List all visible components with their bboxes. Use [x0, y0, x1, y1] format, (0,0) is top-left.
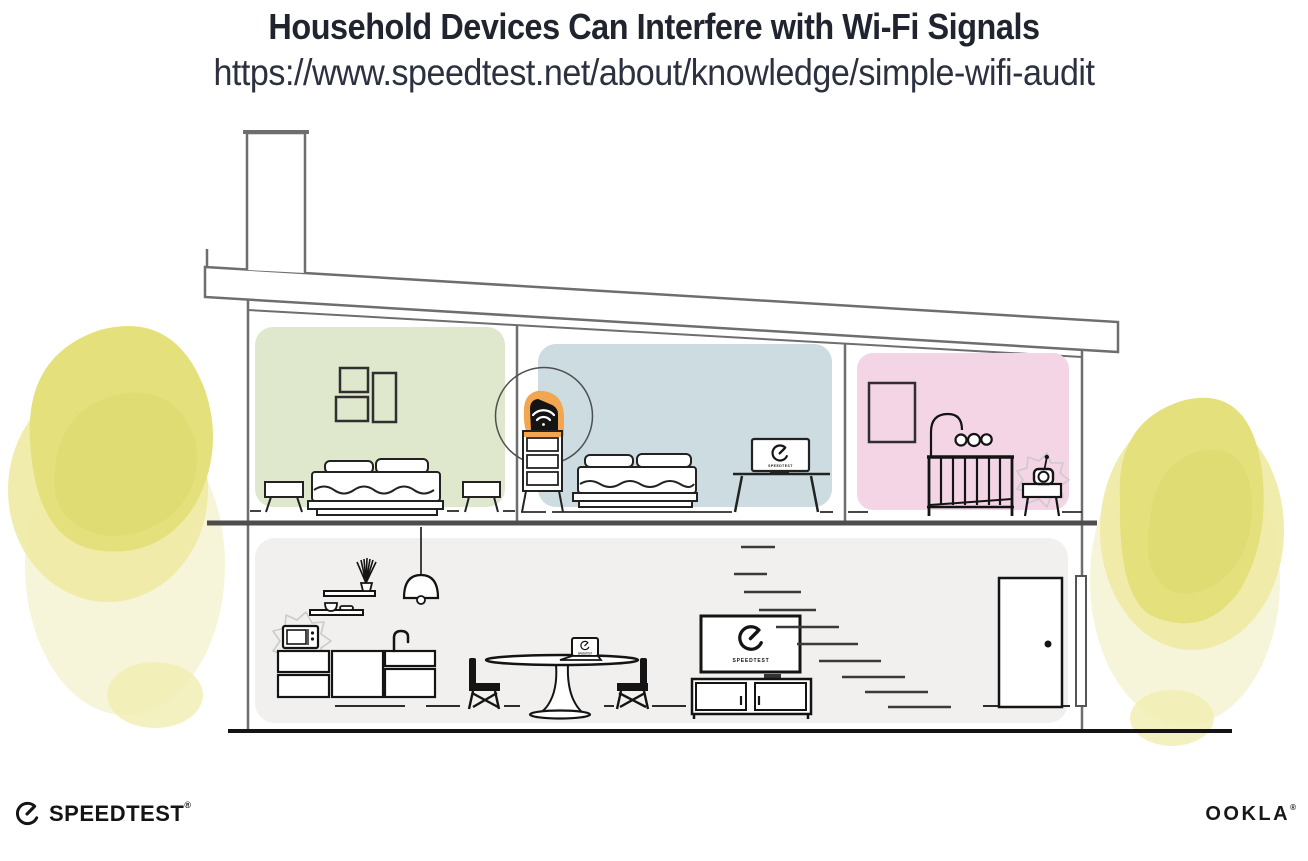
speedtest-wordmark: SPEEDTEST®	[49, 800, 191, 827]
ookla-wordmark: OOKLA	[1205, 803, 1290, 825]
nightstand-left	[265, 482, 303, 512]
tv-icon: SPEEDTEST	[701, 616, 800, 678]
microwave-icon	[283, 626, 318, 648]
downspout	[1076, 576, 1086, 706]
nightstand-right	[463, 482, 500, 512]
foliage-left	[8, 326, 225, 728]
kitchen-counter	[278, 651, 435, 697]
speedtest-logo: SPEEDTEST®	[14, 800, 191, 827]
doorknob-icon	[1045, 641, 1052, 648]
speedtest-trademark: ®	[184, 800, 191, 810]
laptop-screen-label: SPEEDTEST	[578, 653, 593, 656]
chimney	[243, 132, 309, 273]
tv-area: SPEEDTEST	[692, 616, 811, 719]
media-console	[692, 679, 811, 719]
foliage-right	[1090, 398, 1284, 746]
desk-monitor: SPEEDTEST	[752, 439, 809, 475]
house-illustration: SPEEDTEST	[0, 0, 1308, 861]
bed-green	[308, 459, 443, 515]
monitor-screen-label: SPEEDTEST	[768, 464, 793, 468]
tv-screen-label: SPEEDTEST	[733, 658, 770, 664]
speedtest-gauge-icon	[14, 800, 41, 827]
ookla-logo: OOKLA®	[1205, 803, 1296, 825]
ookla-trademark: ®	[1290, 803, 1296, 812]
